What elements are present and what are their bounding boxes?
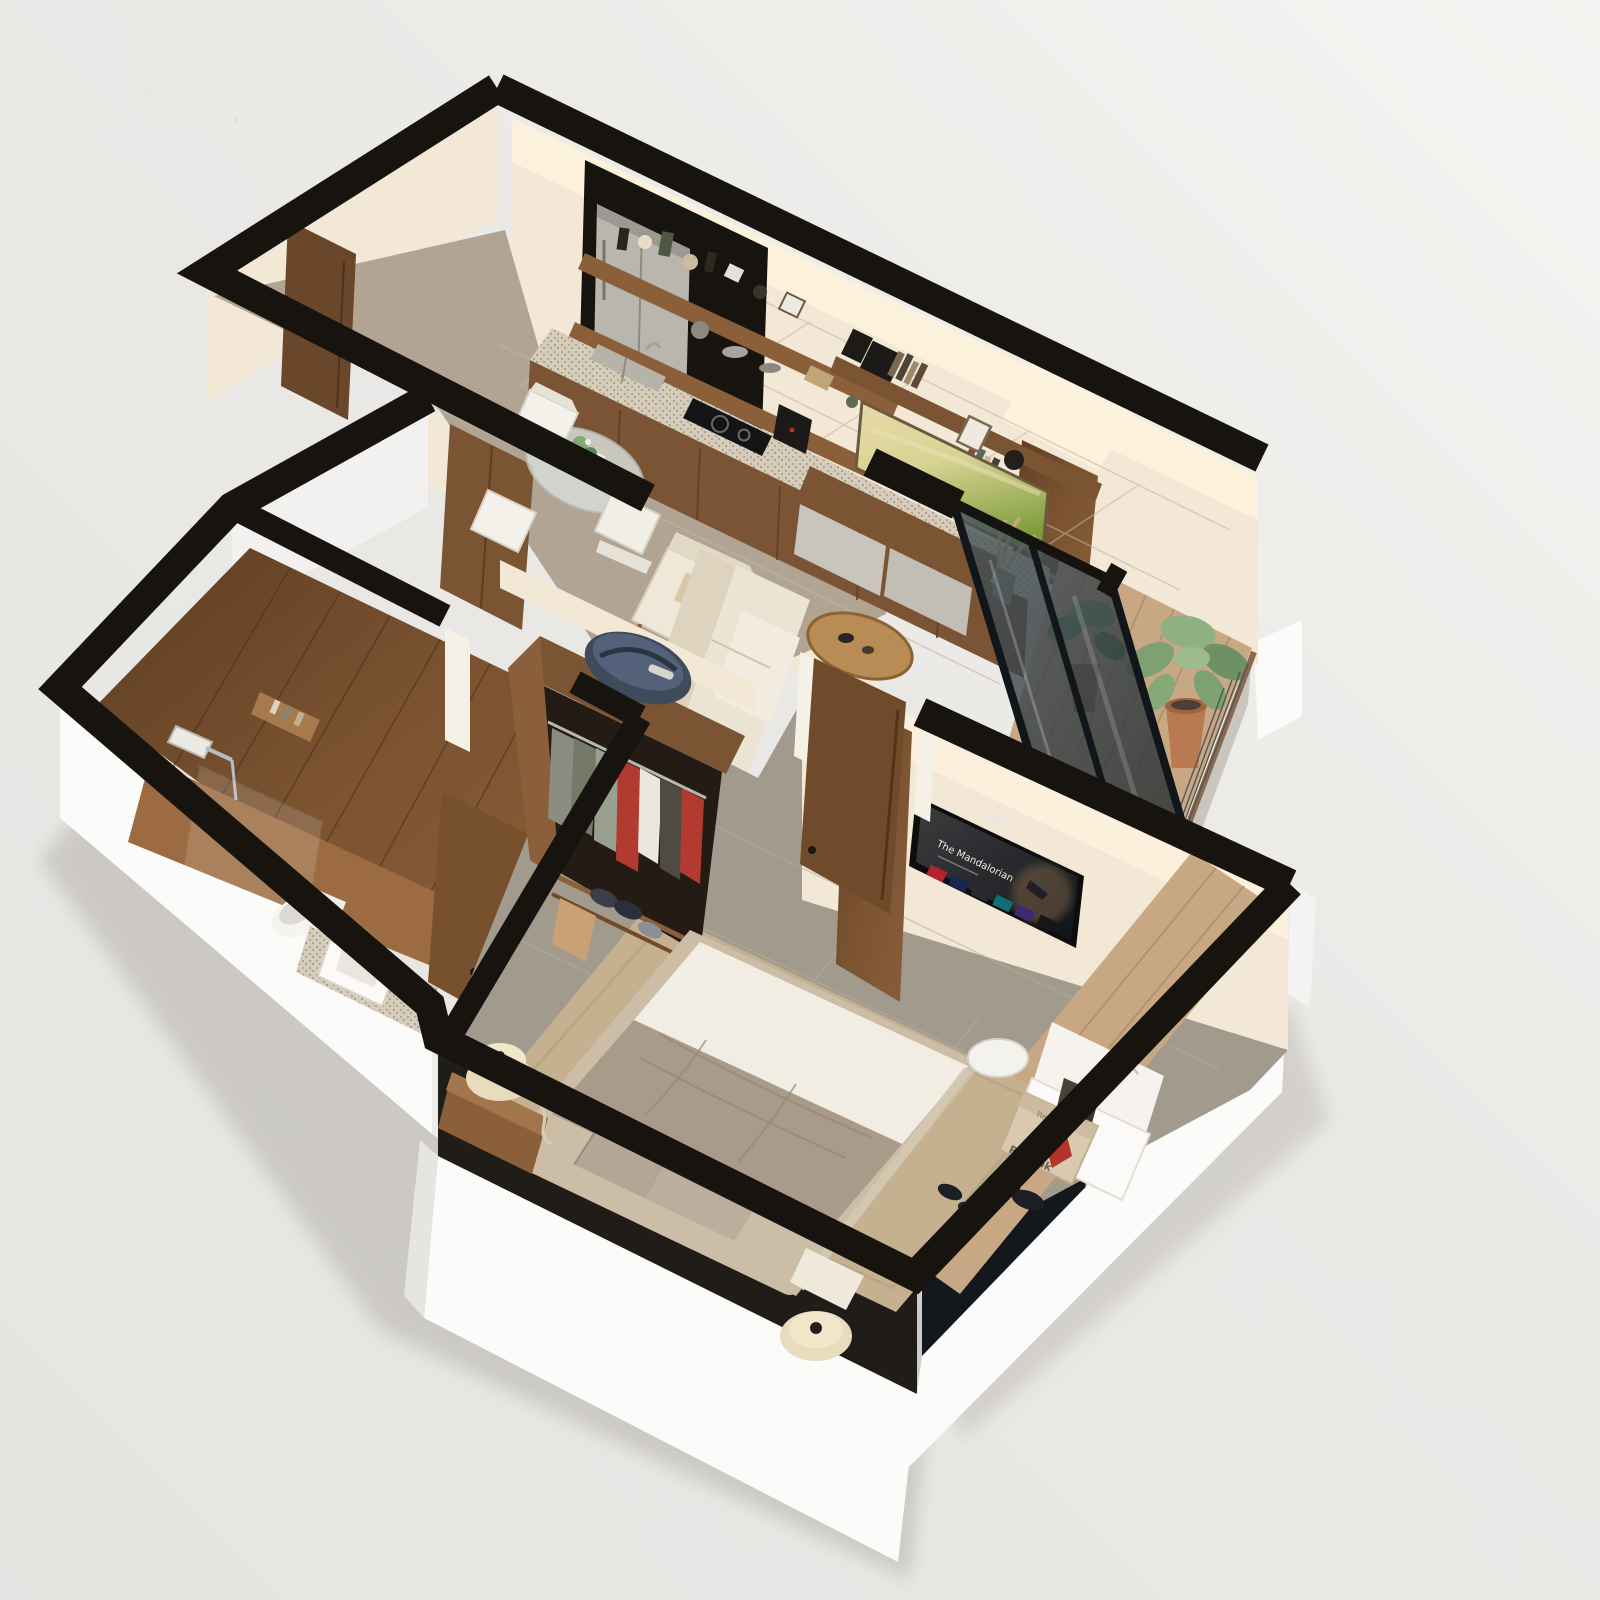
floor-plan-screenshot: The Mandalorian: [0, 0, 1600, 1600]
door-jamb: [445, 628, 470, 752]
exterior-edge: [40, 700, 60, 818]
side-stool: [968, 1039, 1028, 1077]
balcony-column: [1258, 452, 1302, 640]
floor-plan-render: The Mandalorian: [0, 0, 1600, 1600]
door-handle: [808, 846, 816, 854]
floor-lamp: [780, 1311, 852, 1361]
